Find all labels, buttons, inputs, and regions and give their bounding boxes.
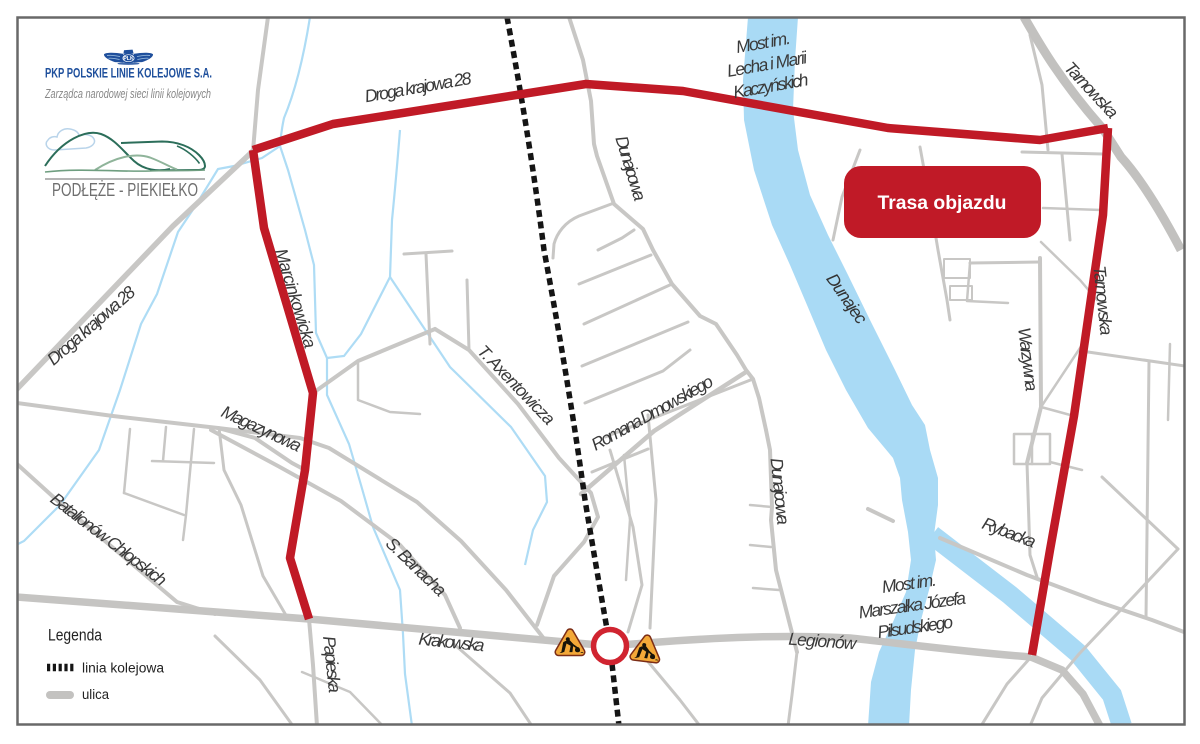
svg-text:ulica: ulica bbox=[82, 687, 109, 702]
svg-text:Trasa objazdu: Trasa objazdu bbox=[878, 192, 1007, 214]
svg-text:PLK: PLK bbox=[123, 56, 134, 62]
svg-text:PKP POLSKIE LINIE KOLEJOWE S.A: PKP POLSKIE LINIE KOLEJOWE S.A. bbox=[45, 66, 212, 81]
svg-text:linia kolejowa: linia kolejowa bbox=[82, 661, 165, 676]
svg-text:Legenda: Legenda bbox=[48, 627, 103, 645]
svg-text:Zarządca narodowej sieci linii: Zarządca narodowej sieci linii kolejowyc… bbox=[44, 87, 211, 101]
svg-text:PODŁĘŻE - PIEKIEŁKO: PODŁĘŻE - PIEKIEŁKO bbox=[52, 180, 198, 200]
